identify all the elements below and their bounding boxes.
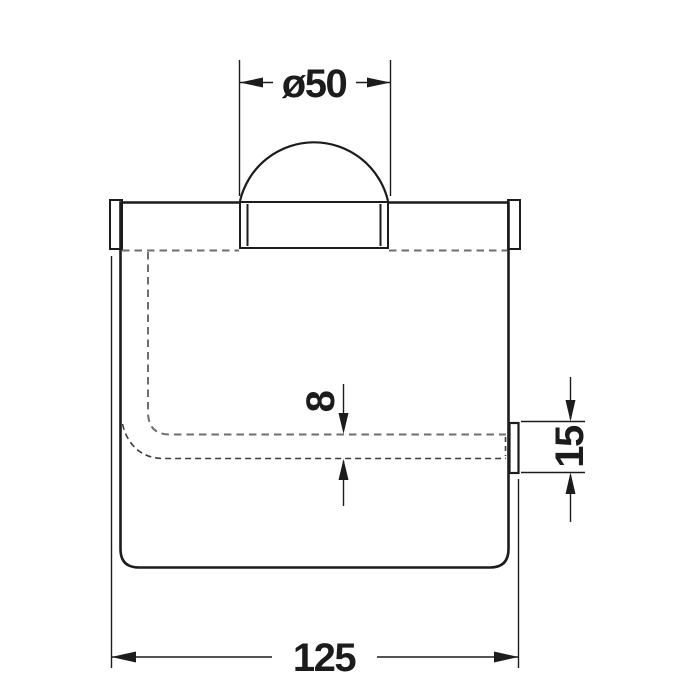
product-outline xyxy=(110,142,520,567)
hidden-lip-edge xyxy=(123,424,507,459)
hidden-edges xyxy=(122,251,507,459)
dim-diameter-arrow-right xyxy=(367,78,391,88)
dim-gap-arrow-up xyxy=(339,459,349,480)
roll-dome-arc xyxy=(240,142,388,201)
dim-diameter-arrow-left xyxy=(240,78,264,88)
technical-drawing-canvas: ø50 8 15 125 xyxy=(0,0,700,700)
dim-gap-label: 8 xyxy=(299,390,343,412)
dim-button-arrow-up xyxy=(566,473,576,495)
dim-diameter-label: ø50 xyxy=(282,62,347,106)
dim-width-arrow-left xyxy=(112,652,137,663)
spindle-clamp xyxy=(240,202,388,248)
holder-body-outline xyxy=(121,203,509,568)
release-button xyxy=(510,423,519,473)
dimension-overall-width: 125 xyxy=(112,256,519,680)
dim-width-label: 125 xyxy=(293,636,356,680)
dim-button-arrow-down xyxy=(566,400,576,422)
dimension-cover-gap: 8 xyxy=(299,384,349,506)
dim-button-label: 15 xyxy=(548,425,592,468)
dim-width-arrow-right xyxy=(494,652,519,663)
drawing-page: ø50 8 15 125 xyxy=(0,0,700,700)
dimension-roll-diameter: ø50 xyxy=(240,60,391,196)
dim-gap-arrow-down xyxy=(339,413,349,434)
dimension-button-height: 15 xyxy=(521,377,592,522)
